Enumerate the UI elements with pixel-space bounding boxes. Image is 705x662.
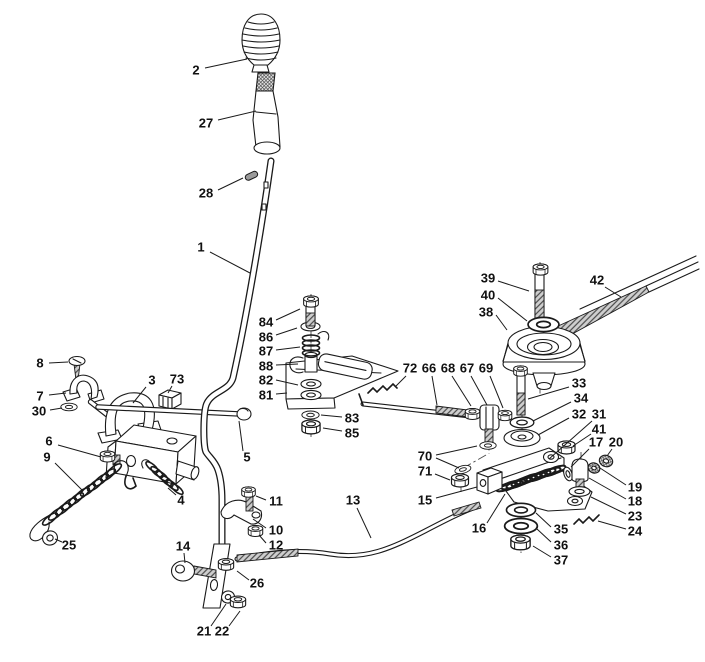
pulley-bolt xyxy=(533,264,548,320)
washer-83 xyxy=(302,411,319,419)
spring-87 xyxy=(303,332,329,356)
part-label-6: 6 xyxy=(45,433,52,448)
part-label-30: 30 xyxy=(32,403,46,418)
part-label-21: 21 xyxy=(197,623,211,638)
nut-37 xyxy=(511,535,530,550)
leader-line-86 xyxy=(276,328,297,335)
leader-line-37 xyxy=(533,546,551,557)
part-label-26: 26 xyxy=(250,575,264,590)
leader-line-87 xyxy=(276,347,300,350)
part-label-72: 72 xyxy=(403,360,417,375)
part-label-88: 88 xyxy=(259,358,273,373)
part-label-4: 4 xyxy=(177,492,185,507)
nut-22 xyxy=(230,596,245,608)
part-label-71: 71 xyxy=(418,463,432,478)
leader-line-38 xyxy=(496,315,507,330)
leader-line-30 xyxy=(50,408,62,410)
part-label-32: 32 xyxy=(572,406,586,421)
washer-70a xyxy=(480,442,496,450)
part-label-7: 7 xyxy=(36,388,43,403)
leader-line-16 xyxy=(487,494,505,523)
part-label-81: 81 xyxy=(259,387,273,402)
nut-85 xyxy=(302,420,320,434)
leader-line-19 xyxy=(600,468,626,485)
clip-24 xyxy=(574,515,599,524)
part-label-34: 34 xyxy=(574,390,589,405)
part-label-15: 15 xyxy=(418,492,432,507)
washer-30 xyxy=(61,403,77,411)
washer-25 xyxy=(41,529,60,547)
leader-line-34 xyxy=(533,402,571,421)
gear-knob xyxy=(242,14,280,72)
jam-nut-69 xyxy=(498,410,512,420)
part-label-27: 27 xyxy=(199,115,213,130)
nut-26 xyxy=(218,559,233,571)
part-label-20: 20 xyxy=(609,434,623,449)
part-label-39: 39 xyxy=(481,270,495,285)
leader-line-72 xyxy=(396,376,406,386)
leader-line-8 xyxy=(49,362,68,363)
belt-guide-rod xyxy=(556,256,699,339)
part-label-23: 23 xyxy=(628,508,642,523)
part-label-10: 10 xyxy=(269,522,283,537)
leader-line-28 xyxy=(218,178,243,190)
flat-washer-34 xyxy=(510,417,534,428)
nut-12 xyxy=(248,525,262,536)
part-label-35: 35 xyxy=(554,521,568,536)
part-label-42: 42 xyxy=(590,272,604,287)
part-label-87: 87 xyxy=(259,343,273,358)
washer-36 xyxy=(505,518,538,533)
leader-line-35 xyxy=(536,513,551,527)
exploded-parts-diagram: 2272818486878882818385726668676987303736… xyxy=(0,0,705,662)
leader-line-32 xyxy=(538,418,569,435)
part-label-33: 33 xyxy=(572,375,586,390)
leader-line-5 xyxy=(239,421,243,451)
leader-line-2 xyxy=(205,59,247,68)
part-label-1: 1 xyxy=(197,239,204,254)
part-label-85: 85 xyxy=(345,425,359,440)
part-label-82: 82 xyxy=(259,372,273,387)
washer-23 xyxy=(569,487,590,497)
leader-line-12 xyxy=(259,535,266,543)
part-label-22: 22 xyxy=(215,623,229,638)
leader-line-70 xyxy=(436,446,477,455)
leader-line-81 xyxy=(276,393,287,394)
leader-line-22 xyxy=(229,611,240,626)
part-label-31: 31 xyxy=(592,406,606,421)
part-label-16: 16 xyxy=(472,520,486,535)
part-label-36: 36 xyxy=(554,537,568,552)
part-label-25: 25 xyxy=(62,537,76,552)
part-label-9: 9 xyxy=(43,449,50,464)
leader-line-13 xyxy=(357,508,371,538)
part-label-38: 38 xyxy=(479,304,493,319)
cable-clamp-7 xyxy=(63,375,104,403)
part-label-19: 19 xyxy=(628,479,642,494)
part-label-70: 70 xyxy=(418,448,432,463)
part-label-2: 2 xyxy=(192,62,199,77)
part-label-8: 8 xyxy=(36,355,43,370)
lever-grip xyxy=(253,73,280,154)
part-label-11: 11 xyxy=(269,493,283,508)
leader-line-85 xyxy=(323,428,342,431)
part-label-84: 84 xyxy=(259,314,274,329)
part-label-13: 13 xyxy=(346,492,360,507)
leader-line-9 xyxy=(55,463,82,490)
leader-line-39 xyxy=(498,281,529,291)
pivot-bolt xyxy=(514,366,528,415)
leader-line-67 xyxy=(471,376,487,405)
leader-line-66 xyxy=(432,376,437,405)
part-label-68: 68 xyxy=(441,360,455,375)
washer-35 xyxy=(506,503,535,516)
part-label-14: 14 xyxy=(176,538,191,553)
adjuster-rod xyxy=(359,394,470,417)
part-label-73: 73 xyxy=(170,371,184,386)
dished-washer-32 xyxy=(504,430,540,447)
leader-line-84 xyxy=(276,309,300,320)
leader-line-71 xyxy=(435,474,450,480)
roll-pin-28 xyxy=(244,170,258,181)
guide-block-15 xyxy=(477,468,502,494)
part-label-5: 5 xyxy=(243,449,250,464)
part-label-86: 86 xyxy=(259,329,273,344)
jam-nut-68 xyxy=(465,408,479,419)
part-label-67: 67 xyxy=(460,360,474,375)
part-label-17: 17 xyxy=(589,434,603,449)
part-label-37: 37 xyxy=(554,552,568,567)
part-label-66: 66 xyxy=(422,360,436,375)
clip-73 xyxy=(159,390,181,409)
leader-line-20 xyxy=(607,449,612,456)
pulley-top-washer xyxy=(528,317,559,331)
bushing-19 xyxy=(587,461,602,475)
part-label-3: 3 xyxy=(148,372,155,387)
leader-line-15 xyxy=(436,487,477,498)
leader-line-11 xyxy=(256,496,266,500)
part-label-12: 12 xyxy=(269,537,283,552)
leader-line-36 xyxy=(537,529,551,542)
clip-72 xyxy=(368,384,397,393)
leader-line-83 xyxy=(321,415,342,417)
leader-line-23 xyxy=(591,497,626,514)
leader-line-26 xyxy=(237,571,249,580)
bolt-84 xyxy=(304,296,319,326)
part-label-83: 83 xyxy=(345,410,359,425)
leader-line-40 xyxy=(498,298,527,321)
part-label-18: 18 xyxy=(628,493,642,508)
leader-line-1 xyxy=(210,252,250,273)
leader-line-6 xyxy=(58,445,101,457)
leader-line-68 xyxy=(452,376,471,406)
part-label-24: 24 xyxy=(628,523,643,538)
leader-line-24 xyxy=(598,521,626,529)
pivot-pin-5 xyxy=(98,407,251,420)
part-label-69: 69 xyxy=(479,360,493,375)
washer-70b xyxy=(454,464,472,475)
part-label-40: 40 xyxy=(481,287,495,302)
part-label-28: 28 xyxy=(199,185,213,200)
leader-line-70 xyxy=(436,458,459,468)
leader-line-27 xyxy=(218,111,256,120)
bushing-20 xyxy=(598,453,615,468)
nut-71 xyxy=(452,474,469,487)
leader-line-42 xyxy=(605,287,621,297)
leader-line-69 xyxy=(490,376,503,408)
